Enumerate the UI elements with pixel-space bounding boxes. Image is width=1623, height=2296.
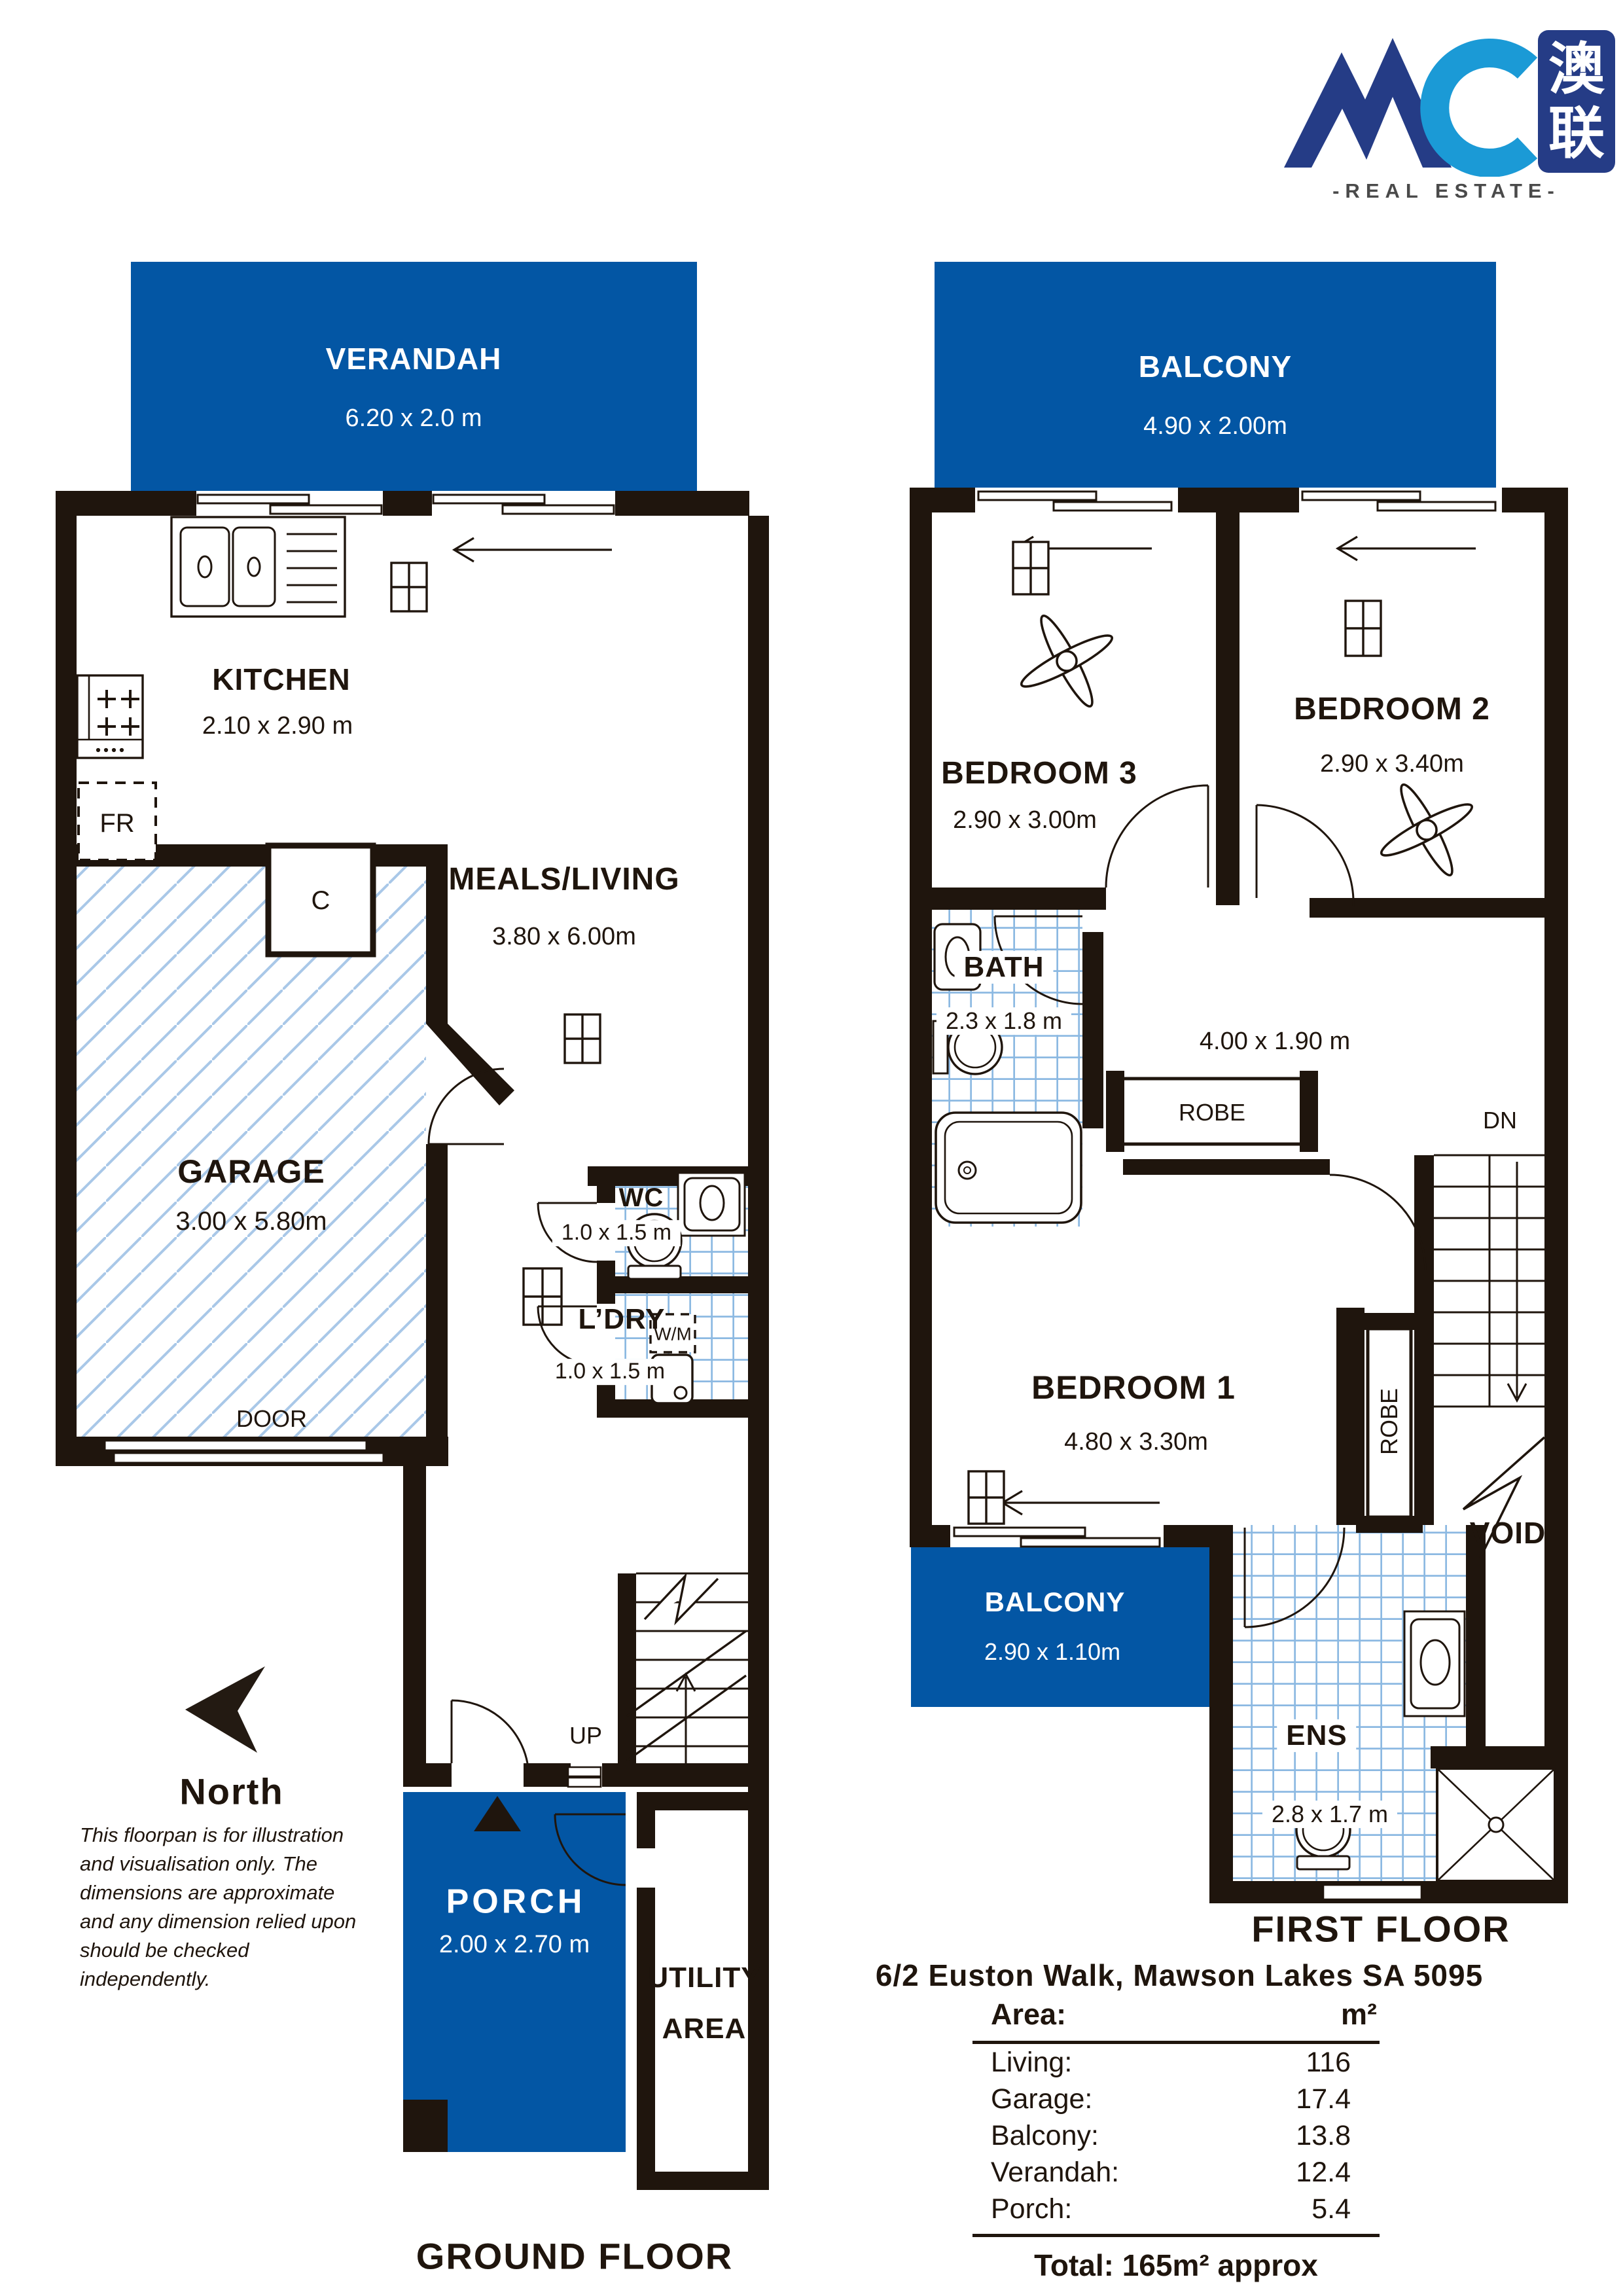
stairs-up: [627, 1573, 748, 1767]
stairs-down: [1434, 1155, 1544, 1558]
area-table: Area: m² Living: 116 Garage: 17.4 Balcon…: [972, 1998, 1380, 2283]
hall-dims: 4.00 x 1.90 m: [1200, 1029, 1350, 1055]
bath-label: BATH: [955, 951, 1054, 984]
bedroom3-dims: 2.90 x 3.00m: [953, 808, 1097, 834]
ensuite-dims: 2.8 x 1.7 m: [1262, 1801, 1397, 1828]
bedroom2-label: BEDROOM 2: [1294, 693, 1490, 726]
shower-icon: [1437, 1768, 1555, 1881]
garage-door-label: DOOR: [236, 1407, 307, 1431]
utility-label-2: AREA: [662, 2014, 747, 2044]
slide-arrows-first: [1014, 537, 1476, 560]
area-row-living: Living: 116: [972, 2044, 1380, 2081]
garage-dims: 3.00 x 5.80m: [175, 1208, 327, 1235]
disclaimer-line: This floorpan is for illustration: [80, 1821, 473, 1850]
bedroom3-label: BEDROOM 3: [941, 757, 1137, 790]
wc-label: WC: [619, 1184, 664, 1211]
bed1-slider: [954, 1528, 1160, 1547]
logo-cjk-box: 澳 联: [1538, 30, 1615, 173]
row-label: Verandah:: [991, 2156, 1119, 2189]
kitchen-label: KITCHEN: [212, 664, 350, 695]
wc-dims: 1.0 x 1.5 m: [552, 1220, 681, 1246]
bath-dims: 2.3 x 1.8 m: [936, 1007, 1071, 1035]
meals-living-dims: 3.80 x 6.00m: [492, 924, 636, 950]
logo-cjk-top: 澳: [1548, 37, 1605, 101]
area-row-verandah: Verandah: 12.4: [972, 2154, 1380, 2191]
area-row-garage: Garage: 17.4: [972, 2081, 1380, 2117]
disclaimer-line: dimensions are approximate: [80, 1878, 473, 1907]
disclaimer-line: should be checked: [80, 1936, 473, 1965]
garage-label: GARAGE: [177, 1155, 325, 1189]
washing-machine-label: W/M: [654, 1324, 692, 1343]
balcony-top-label: BALCONY: [1139, 351, 1292, 382]
disclaimer-line: and visualisation only. The: [80, 1850, 473, 1878]
row-value: 12.4: [1296, 2156, 1351, 2189]
bedroom1-dims: 4.80 x 3.30m: [1064, 1429, 1208, 1456]
stairs-up-label: UP: [569, 1723, 602, 1748]
row-value: 17.4: [1296, 2083, 1351, 2115]
disclaimer-text: This floorpan is for illustration and vi…: [80, 1821, 473, 1994]
kitchen-sink: [171, 517, 345, 617]
balcony-top-dims: 4.90 x 2.00m: [1143, 414, 1287, 440]
fridge-label: FR: [99, 810, 134, 837]
row-label: Garage:: [991, 2083, 1092, 2115]
ground-doors: [429, 1069, 626, 1885]
disclaimer-line: independently.: [80, 1965, 473, 1994]
stairs-down-label: DN: [1483, 1108, 1517, 1133]
floorplan-page: 澳 联 -REAL ESTATE- VERANDAH 6.20 x 2.0 m …: [0, 0, 1623, 2296]
area-header-label: Area:: [991, 1998, 1066, 2032]
first-floor-title: FIRST FLOOR: [1251, 1910, 1510, 1949]
logo-ac-icon: [1277, 20, 1539, 177]
cupboard-label: C: [312, 887, 330, 914]
robe-hall-label: ROBE: [1179, 1100, 1245, 1125]
logo-cjk-bottom: 联: [1548, 101, 1605, 166]
slide-arrow-ground: [454, 538, 612, 562]
ceiling-fan-icon: [1017, 611, 1476, 880]
area-row-porch: Porch: 5.4: [972, 2191, 1380, 2227]
area-header-unit: m²: [1341, 1998, 1377, 2032]
area-total: Total: 165m² approx: [972, 2237, 1380, 2283]
agency-logo: 澳 联 -REAL ESTATE-: [1277, 20, 1598, 209]
row-label: Balcony:: [991, 2119, 1099, 2152]
row-value: 5.4: [1311, 2193, 1351, 2225]
north-arrow-icon: [185, 1666, 265, 1753]
logo-tagline: -REAL ESTATE-: [1277, 179, 1615, 203]
north-label: North: [179, 1773, 283, 1812]
robe-bed1-label: ROBE: [1377, 1388, 1402, 1455]
utility-label-1: UTILITY: [647, 1963, 760, 1993]
ground-floor-title: GROUND FLOOR: [416, 2238, 733, 2276]
balcony-small-area: [911, 1547, 1209, 1707]
property-address: 6/2 Euston Walk, Mawson Lakes SA 5095: [876, 1960, 1483, 1991]
meals-living-label: MEALS/LIVING: [448, 863, 679, 896]
bed1-slide-arrow: [1003, 1491, 1160, 1515]
area-table-header: Area: m²: [972, 1998, 1380, 2041]
bedroom2-dims: 2.90 x 3.40m: [1320, 751, 1464, 778]
kitchen-dims: 2.10 x 2.90 m: [202, 713, 353, 740]
porch-pillar: [403, 2100, 448, 2152]
row-label: Living:: [991, 2046, 1072, 2079]
row-label: Porch:: [991, 2193, 1072, 2225]
verandah-label: VERANDAH: [326, 343, 502, 374]
area-row-balcony: Balcony: 13.8: [972, 2117, 1380, 2154]
balcony-small-dims: 2.90 x 1.10m: [984, 1640, 1120, 1664]
row-value: 13.8: [1296, 2119, 1351, 2152]
verandah-area: [131, 262, 697, 491]
laundry-dims: 1.0 x 1.5 m: [546, 1359, 674, 1385]
stove-cooktop: [77, 675, 143, 758]
void-label: VOID: [1470, 1517, 1546, 1549]
disclaimer-line: and any dimension relied upon: [80, 1907, 473, 1936]
laundry-label: L’DRY: [579, 1304, 666, 1335]
verandah-dims: 6.20 x 2.0 m: [345, 406, 482, 432]
ensuite-label: ENS: [1277, 1719, 1356, 1752]
entry-steps: [568, 1767, 601, 1787]
balcony-small-label: BALCONY: [985, 1588, 1126, 1617]
row-value: 116: [1306, 2046, 1351, 2079]
bedroom1-label: BEDROOM 1: [1031, 1371, 1236, 1405]
